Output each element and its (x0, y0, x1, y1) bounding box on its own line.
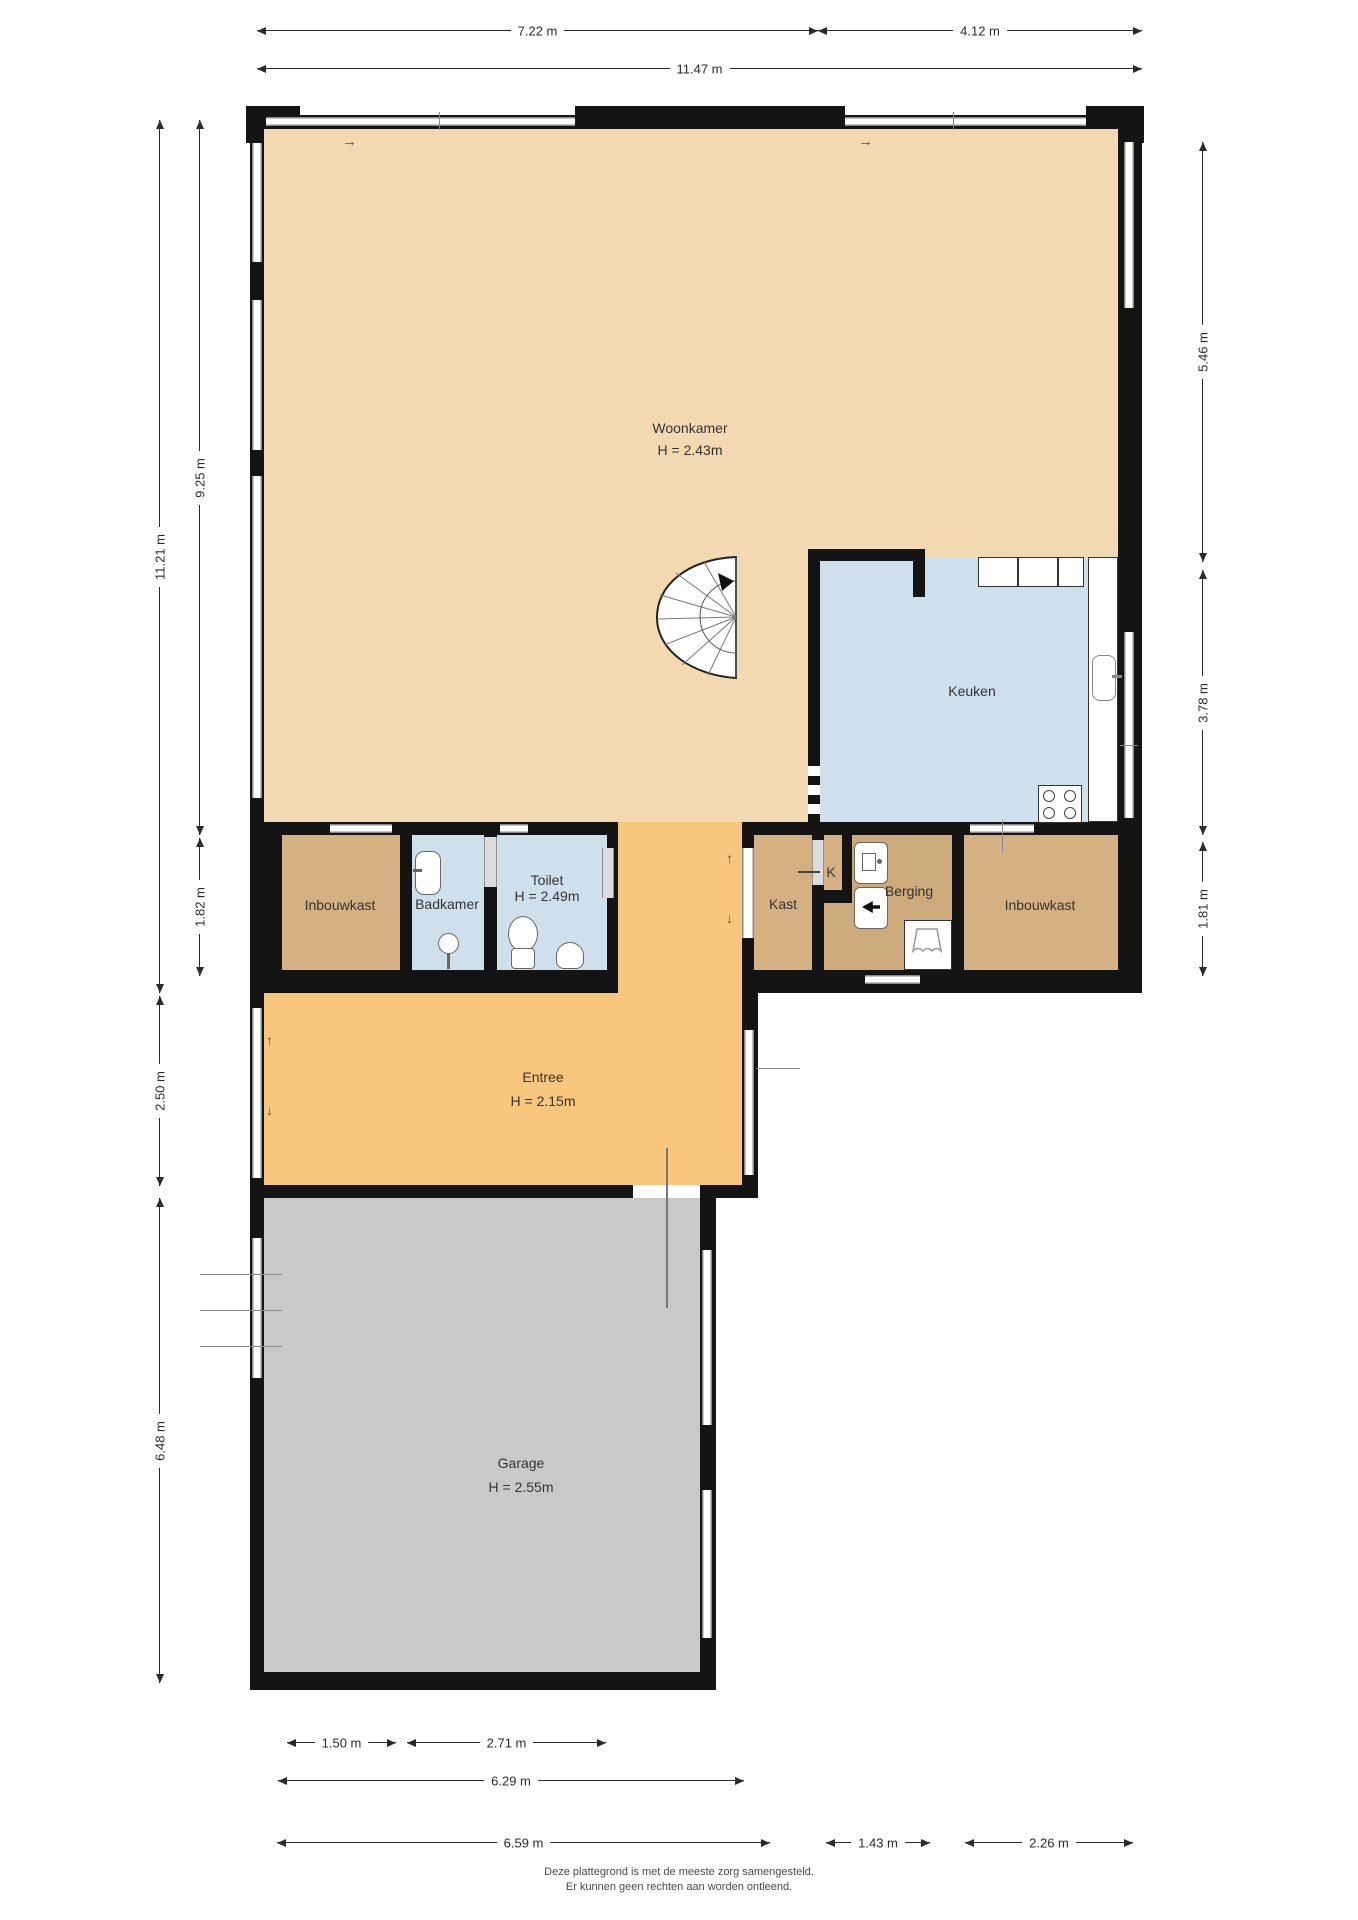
stove-icon (1038, 785, 1082, 823)
label-toilet: Toilet (531, 872, 564, 888)
shower-stem-icon (447, 953, 450, 969)
sliding-door-arrow-icon (342, 133, 357, 151)
dim-label: 2.71 m (480, 1736, 534, 1751)
label-garage-height: H = 2.55m (489, 1479, 554, 1495)
window-tick (439, 112, 440, 130)
window (1124, 142, 1134, 308)
boiler-icon (904, 920, 952, 970)
label-inbouwkast-left: Inbouwkast (305, 897, 376, 913)
dim-top-left: 7.22 m (257, 30, 818, 31)
kitchen-cabinet (1058, 557, 1084, 587)
dim-top-right: 4.12 m (818, 30, 1142, 31)
dim-label: 7.22 m (511, 24, 565, 39)
window-tick (756, 1068, 800, 1069)
dim-label: 1.82 m (193, 880, 208, 934)
window-tick (1002, 820, 1003, 852)
label-k-closet: K (826, 864, 835, 880)
dim-bottom-6: 2.26 m (965, 1842, 1133, 1843)
door-leaf (666, 1148, 668, 1308)
label-garage: Garage (498, 1455, 545, 1471)
window-tick (200, 1310, 282, 1311)
label-badkamer: Badkamer (415, 896, 479, 912)
room-entree (264, 993, 742, 1185)
window (252, 1238, 262, 1378)
toilet-icon (508, 916, 538, 952)
dim-right-top: 5.46 m (1202, 142, 1203, 562)
window (252, 300, 262, 450)
door (484, 837, 497, 887)
window (500, 824, 528, 833)
dim-left-garage: 6.48 m (159, 1198, 160, 1683)
floor-plan: Woonkamer H = 2.43m Keuken Inbouwkast Ba… (0, 0, 1358, 1920)
sliding-door-arrow-icon (858, 133, 873, 151)
label-woonkamer-height: H = 2.43m (658, 442, 723, 458)
label-entree: Entree (522, 1069, 563, 1085)
washbasin-icon (415, 851, 441, 895)
dim-label: 1.50 m (315, 1736, 369, 1751)
window (702, 1250, 712, 1425)
window (744, 1030, 754, 1175)
dim-label: 6.48 m (153, 1414, 168, 1468)
window (266, 117, 575, 126)
dim-label: 1.43 m (851, 1836, 905, 1851)
room-garage (264, 1198, 700, 1672)
dim-top-full: 11.47 m (257, 68, 1142, 69)
sliding-door-arrow-icon (266, 1032, 273, 1050)
kitchen-cabinet (978, 557, 1018, 587)
dim-bottom-5: 1.43 m (826, 1842, 930, 1843)
dim-bottom-4: 6.59 m (277, 1842, 770, 1843)
window (865, 975, 920, 984)
dim-bottom-2: 2.71 m (407, 1742, 606, 1743)
dim-left-row: 1.82 m (199, 838, 200, 976)
dim-label: 2.26 m (1022, 1836, 1076, 1851)
dim-label: 5.46 m (1196, 325, 1211, 379)
label-berging: Berging (885, 883, 933, 899)
label-toilet-height: H = 2.49m (515, 888, 580, 904)
wall-kitchen-stub (913, 549, 925, 597)
shower-icon (438, 933, 459, 954)
sliding-door-arrow-icon (726, 910, 733, 928)
washbasin-tap-icon (413, 869, 422, 872)
door (812, 840, 824, 885)
wall-kitchen-left (808, 549, 820, 757)
window (252, 143, 262, 262)
dryer-icon (854, 887, 888, 929)
dim-left-woonkamer: 9.25 m (199, 120, 200, 835)
kitchen-sink-icon (1092, 655, 1116, 701)
sliding-door (742, 848, 754, 938)
dim-right-mid: 3.78 m (1202, 570, 1203, 835)
dim-label: 3.78 m (1196, 676, 1211, 730)
dim-label: 1.81 m (1196, 882, 1211, 936)
kitchen-cabinet (1018, 557, 1058, 587)
spiral-stair-icon (648, 551, 748, 683)
kitchen-tap-icon (1112, 675, 1122, 678)
dim-label: 2.50 m (153, 1064, 168, 1118)
disclaimer-line-1: Deze plattegrond is met de meeste zorg s… (0, 1866, 1358, 1878)
wall-kitchen-top (808, 549, 925, 561)
door (602, 848, 614, 898)
dim-label: 6.59 m (497, 1836, 551, 1851)
window-tick (1120, 745, 1138, 746)
window-tick (953, 112, 954, 130)
sliding-door-arrow-icon (726, 850, 733, 868)
dim-label: 9.25 m (193, 451, 208, 505)
dim-label: 11.21 m (153, 526, 168, 586)
label-kast: Kast (769, 896, 797, 912)
corner-basin-icon (556, 942, 584, 969)
label-keuken: Keuken (948, 683, 995, 699)
dim-left-entree: 2.50 m (159, 996, 160, 1186)
dim-label: 6.29 m (484, 1774, 538, 1789)
window-tick (200, 1346, 282, 1347)
window (252, 476, 262, 798)
wall-kitchen-opening-dashed (808, 757, 820, 822)
window (330, 824, 392, 833)
dim-bottom-3: 6.29 m (278, 1780, 744, 1781)
dim-right-row: 1.81 m (1202, 842, 1203, 976)
k-leader-line (798, 871, 820, 873)
washer-icon (854, 842, 888, 884)
room-k-closet (824, 835, 842, 890)
dim-left-outer: 11.21 m (159, 120, 160, 993)
window-tick (200, 1274, 282, 1275)
window (1124, 632, 1134, 818)
label-entree-height: H = 2.15m (511, 1093, 576, 1109)
label-inbouwkast-right: Inbouwkast (1005, 897, 1076, 913)
dim-label: 4.12 m (953, 24, 1007, 39)
window (702, 1490, 712, 1638)
toilet-tank-icon (511, 948, 535, 969)
dim-label: 11.47 m (669, 62, 729, 77)
window (845, 117, 1086, 126)
room-berging-lower (824, 903, 852, 970)
window (252, 1008, 262, 1178)
dim-bottom-1: 1.50 m (287, 1742, 396, 1743)
sliding-door-arrow-icon (266, 1102, 273, 1120)
label-woonkamer: Woonkamer (652, 420, 727, 436)
disclaimer-line-2: Er kunnen geen rechten aan worden ontlee… (0, 1881, 1358, 1893)
room-hall (618, 822, 742, 993)
